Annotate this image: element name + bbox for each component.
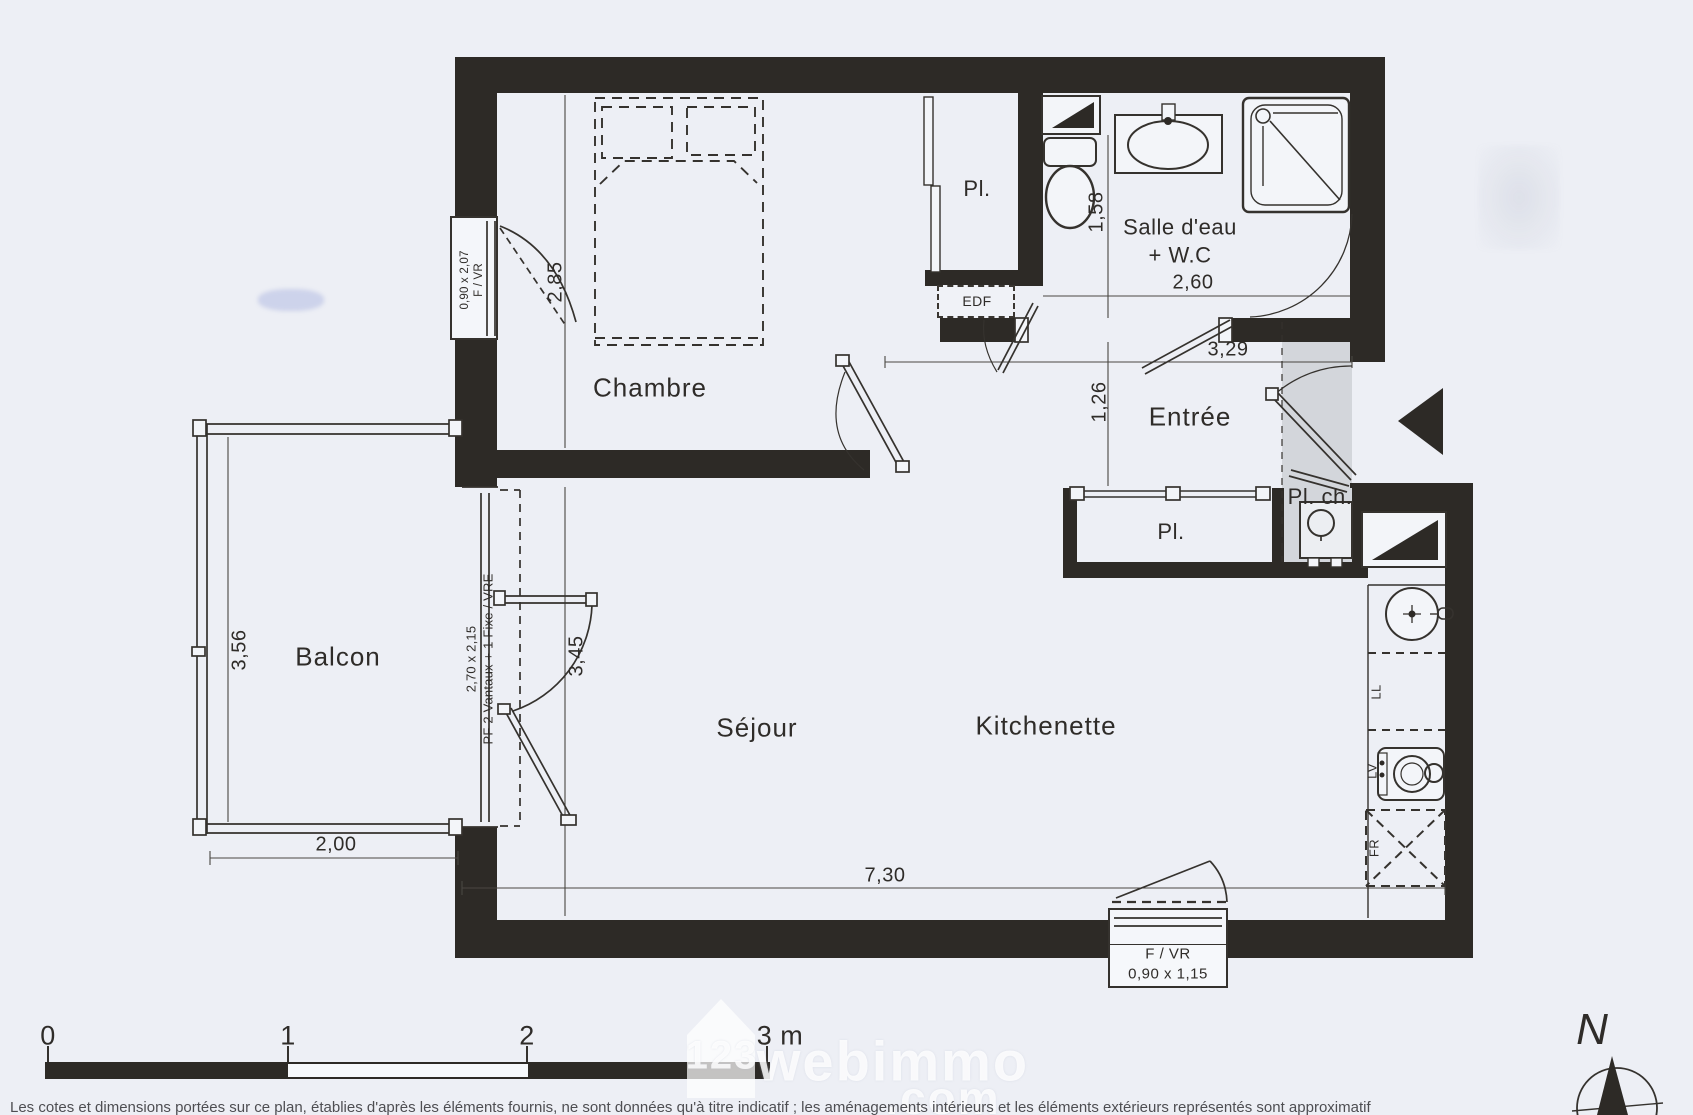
scan-smudge xyxy=(258,289,324,311)
kitchen-counter xyxy=(1368,585,1445,918)
dimension-lines xyxy=(210,95,1445,916)
scale-label-2: 2 xyxy=(519,1021,535,1052)
label-lave-vaisselle: LV xyxy=(1365,763,1380,779)
label-lave-linge: LL xyxy=(1369,684,1384,699)
scale-ticks xyxy=(48,1046,767,1062)
scale-label-0: 0 xyxy=(40,1021,56,1052)
room-label-kitchenette: Kitchenette xyxy=(975,711,1116,742)
window-kitchenette-type: F / VR xyxy=(1128,945,1208,965)
window-chambre-type: F / VR xyxy=(473,263,485,297)
wall-top xyxy=(455,57,1385,93)
window-chambre-size: 0,90 x 2,07 xyxy=(459,250,471,309)
dim-chambre-depth: 2,85 xyxy=(545,262,568,303)
wall-kitchen-right xyxy=(1445,513,1473,958)
room-label-chambre: Chambre xyxy=(593,373,707,404)
salle-eau-line1: Salle d'eau xyxy=(1123,214,1237,242)
dim-salle-eau-depth: 1,58 xyxy=(1086,192,1109,233)
entrance-arrow-icon xyxy=(1398,388,1443,455)
wall-chambre-sejour xyxy=(455,450,870,478)
shower-icon xyxy=(1243,98,1349,212)
placard-sliding-doors xyxy=(924,97,940,272)
label-refrigerateur: FR xyxy=(1367,839,1382,857)
scale-bar-segment xyxy=(45,1062,288,1079)
vent-duct2-icon xyxy=(1362,512,1446,567)
scale-label-1: 1 xyxy=(280,1021,296,1052)
wall-closet-bottom xyxy=(925,270,1043,286)
compass-rose xyxy=(1572,1056,1663,1115)
wall-entrance-step xyxy=(1350,483,1473,513)
room-label-salle-eau: Salle d'eau + W.C xyxy=(1123,214,1237,269)
window-kitchenette-label: F / VR 0,90 x 1,15 xyxy=(1128,945,1208,984)
dim-balcon-width: 2,00 xyxy=(316,834,357,857)
wall-bottom-left xyxy=(455,920,1108,958)
wall-placard-bottom xyxy=(1063,562,1358,578)
wall-closet-bathroom xyxy=(1018,93,1043,285)
dim-sejour-width: 7,30 xyxy=(865,865,906,888)
scan-smudge xyxy=(1478,145,1560,250)
bed xyxy=(595,98,763,345)
dim-entree-depth: 1,26 xyxy=(1089,382,1112,423)
wall-placard-divider xyxy=(1272,488,1284,562)
window-kitchenette xyxy=(1108,908,1228,946)
washbasin-icon xyxy=(1115,104,1222,173)
dim-salle-eau-width: 2,60 xyxy=(1173,272,1214,295)
cooktop-icon xyxy=(1378,748,1444,800)
watermark-123: 123 xyxy=(686,1034,759,1079)
wall-left-upper xyxy=(455,93,497,218)
wall-under-edf xyxy=(940,318,1015,342)
floor-plan-page: Chambre Balcon Séjour Kitchenette Entrée… xyxy=(0,0,1693,1115)
balcony-railing xyxy=(192,420,462,835)
window-sejour-size: 2,70 x 2,15 xyxy=(464,626,479,693)
kitchen-sink-icon xyxy=(1386,588,1453,640)
disclaimer-text: Les cotes et dimensions portées sur ce p… xyxy=(10,1099,1570,1115)
room-label-placard-chambre: Pl. xyxy=(963,176,990,202)
wall-bathroom-bottom xyxy=(1232,318,1352,342)
dim-balcon-depth: 3,56 xyxy=(229,630,252,671)
room-label-placard-chaudiere: Pl. ch. xyxy=(1288,484,1353,510)
salle-eau-line2: + W.C xyxy=(1123,241,1237,269)
label-edf: EDF xyxy=(962,293,991,309)
room-label-placard-sejour: Pl. xyxy=(1157,519,1184,545)
room-label-entree: Entrée xyxy=(1149,402,1232,433)
wall-right-upper xyxy=(1350,57,1385,362)
wall-plch-stub xyxy=(1352,513,1368,578)
dim-sejour-depth: 3,45 xyxy=(566,636,589,677)
wall-bottom-right xyxy=(1228,920,1473,958)
dim-hall-width: 3,29 xyxy=(1208,339,1249,362)
window-kitchenette-size: 0,90 x 1,15 xyxy=(1128,964,1208,984)
window-sejour-type: PF 2 Vantaux + 1 Fixe / VRE xyxy=(481,574,496,745)
room-label-balcon: Balcon xyxy=(295,642,381,673)
room-label-sejour: Séjour xyxy=(716,713,797,744)
vent-duct-icon xyxy=(1042,96,1100,134)
compass-north-label: N xyxy=(1576,1005,1608,1055)
placard-front xyxy=(1070,487,1270,500)
